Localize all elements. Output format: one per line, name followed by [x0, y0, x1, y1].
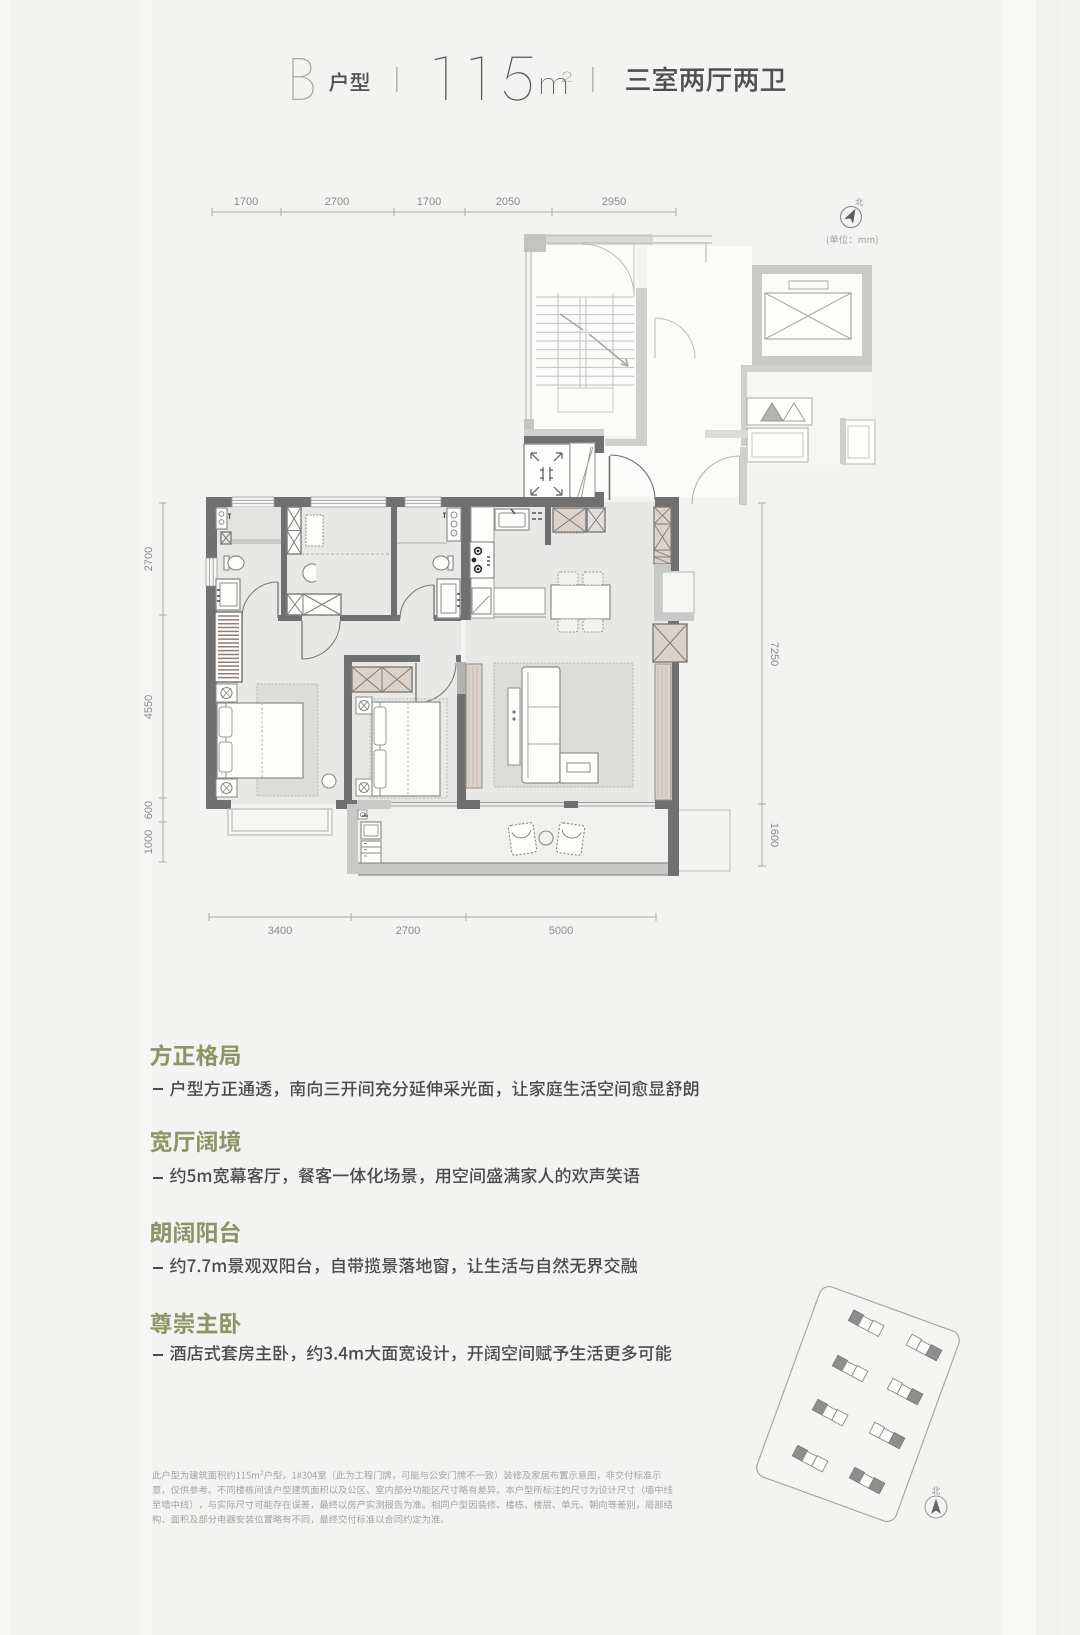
svg-text:2950: 2950 — [602, 196, 626, 208]
svg-text:600: 600 — [143, 801, 155, 819]
svg-text:1000: 1000 — [143, 830, 155, 854]
svg-text:4550: 4550 — [143, 695, 155, 719]
svg-text:1700: 1700 — [417, 196, 441, 208]
svg-text:1700: 1700 — [234, 196, 258, 208]
svg-text:2700: 2700 — [325, 196, 349, 208]
svg-text:5000: 5000 — [549, 925, 573, 937]
svg-text:2700: 2700 — [396, 925, 420, 937]
svg-text:7250: 7250 — [768, 642, 780, 666]
svg-text:3400: 3400 — [268, 925, 292, 937]
svg-text:1600: 1600 — [768, 823, 780, 847]
svg-text:2700: 2700 — [143, 547, 155, 571]
svg-text:2050: 2050 — [496, 196, 520, 208]
